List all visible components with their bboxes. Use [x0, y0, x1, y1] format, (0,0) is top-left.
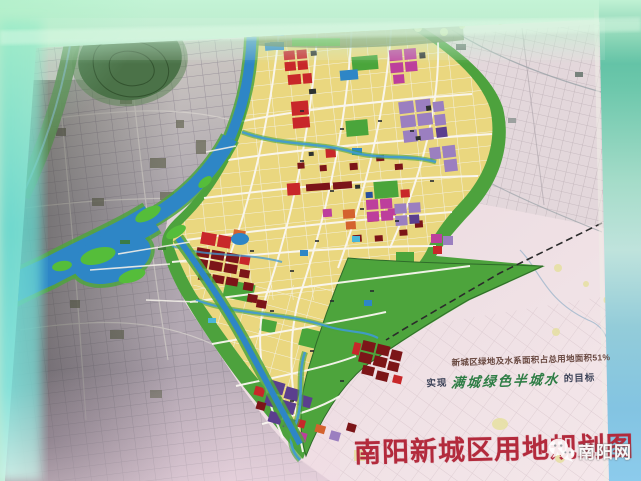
annotation-text: 新城区绿地及水系面积占总用地面积51% 实现 满城绿色半城水 的目标 [425, 351, 626, 393]
wechat-icon [548, 437, 575, 463]
annotation-slogan: 满城绿色半城水 [447, 368, 565, 392]
watermark-site-name: 南阳网 [578, 438, 632, 463]
planning-map-art [0, 0, 641, 481]
site-watermark: 南阳网 [548, 437, 632, 463]
photo-of-planning-map-board: 新城区绿地及水系面积占总用地面积51% 实现 满城绿色半城水 的目标 南阳新城区… [0, 0, 641, 481]
annotation-suffix: 的目标 [564, 370, 596, 385]
annotation-prefix: 实现 [426, 375, 447, 390]
display-frame-band [596, 0, 641, 481]
